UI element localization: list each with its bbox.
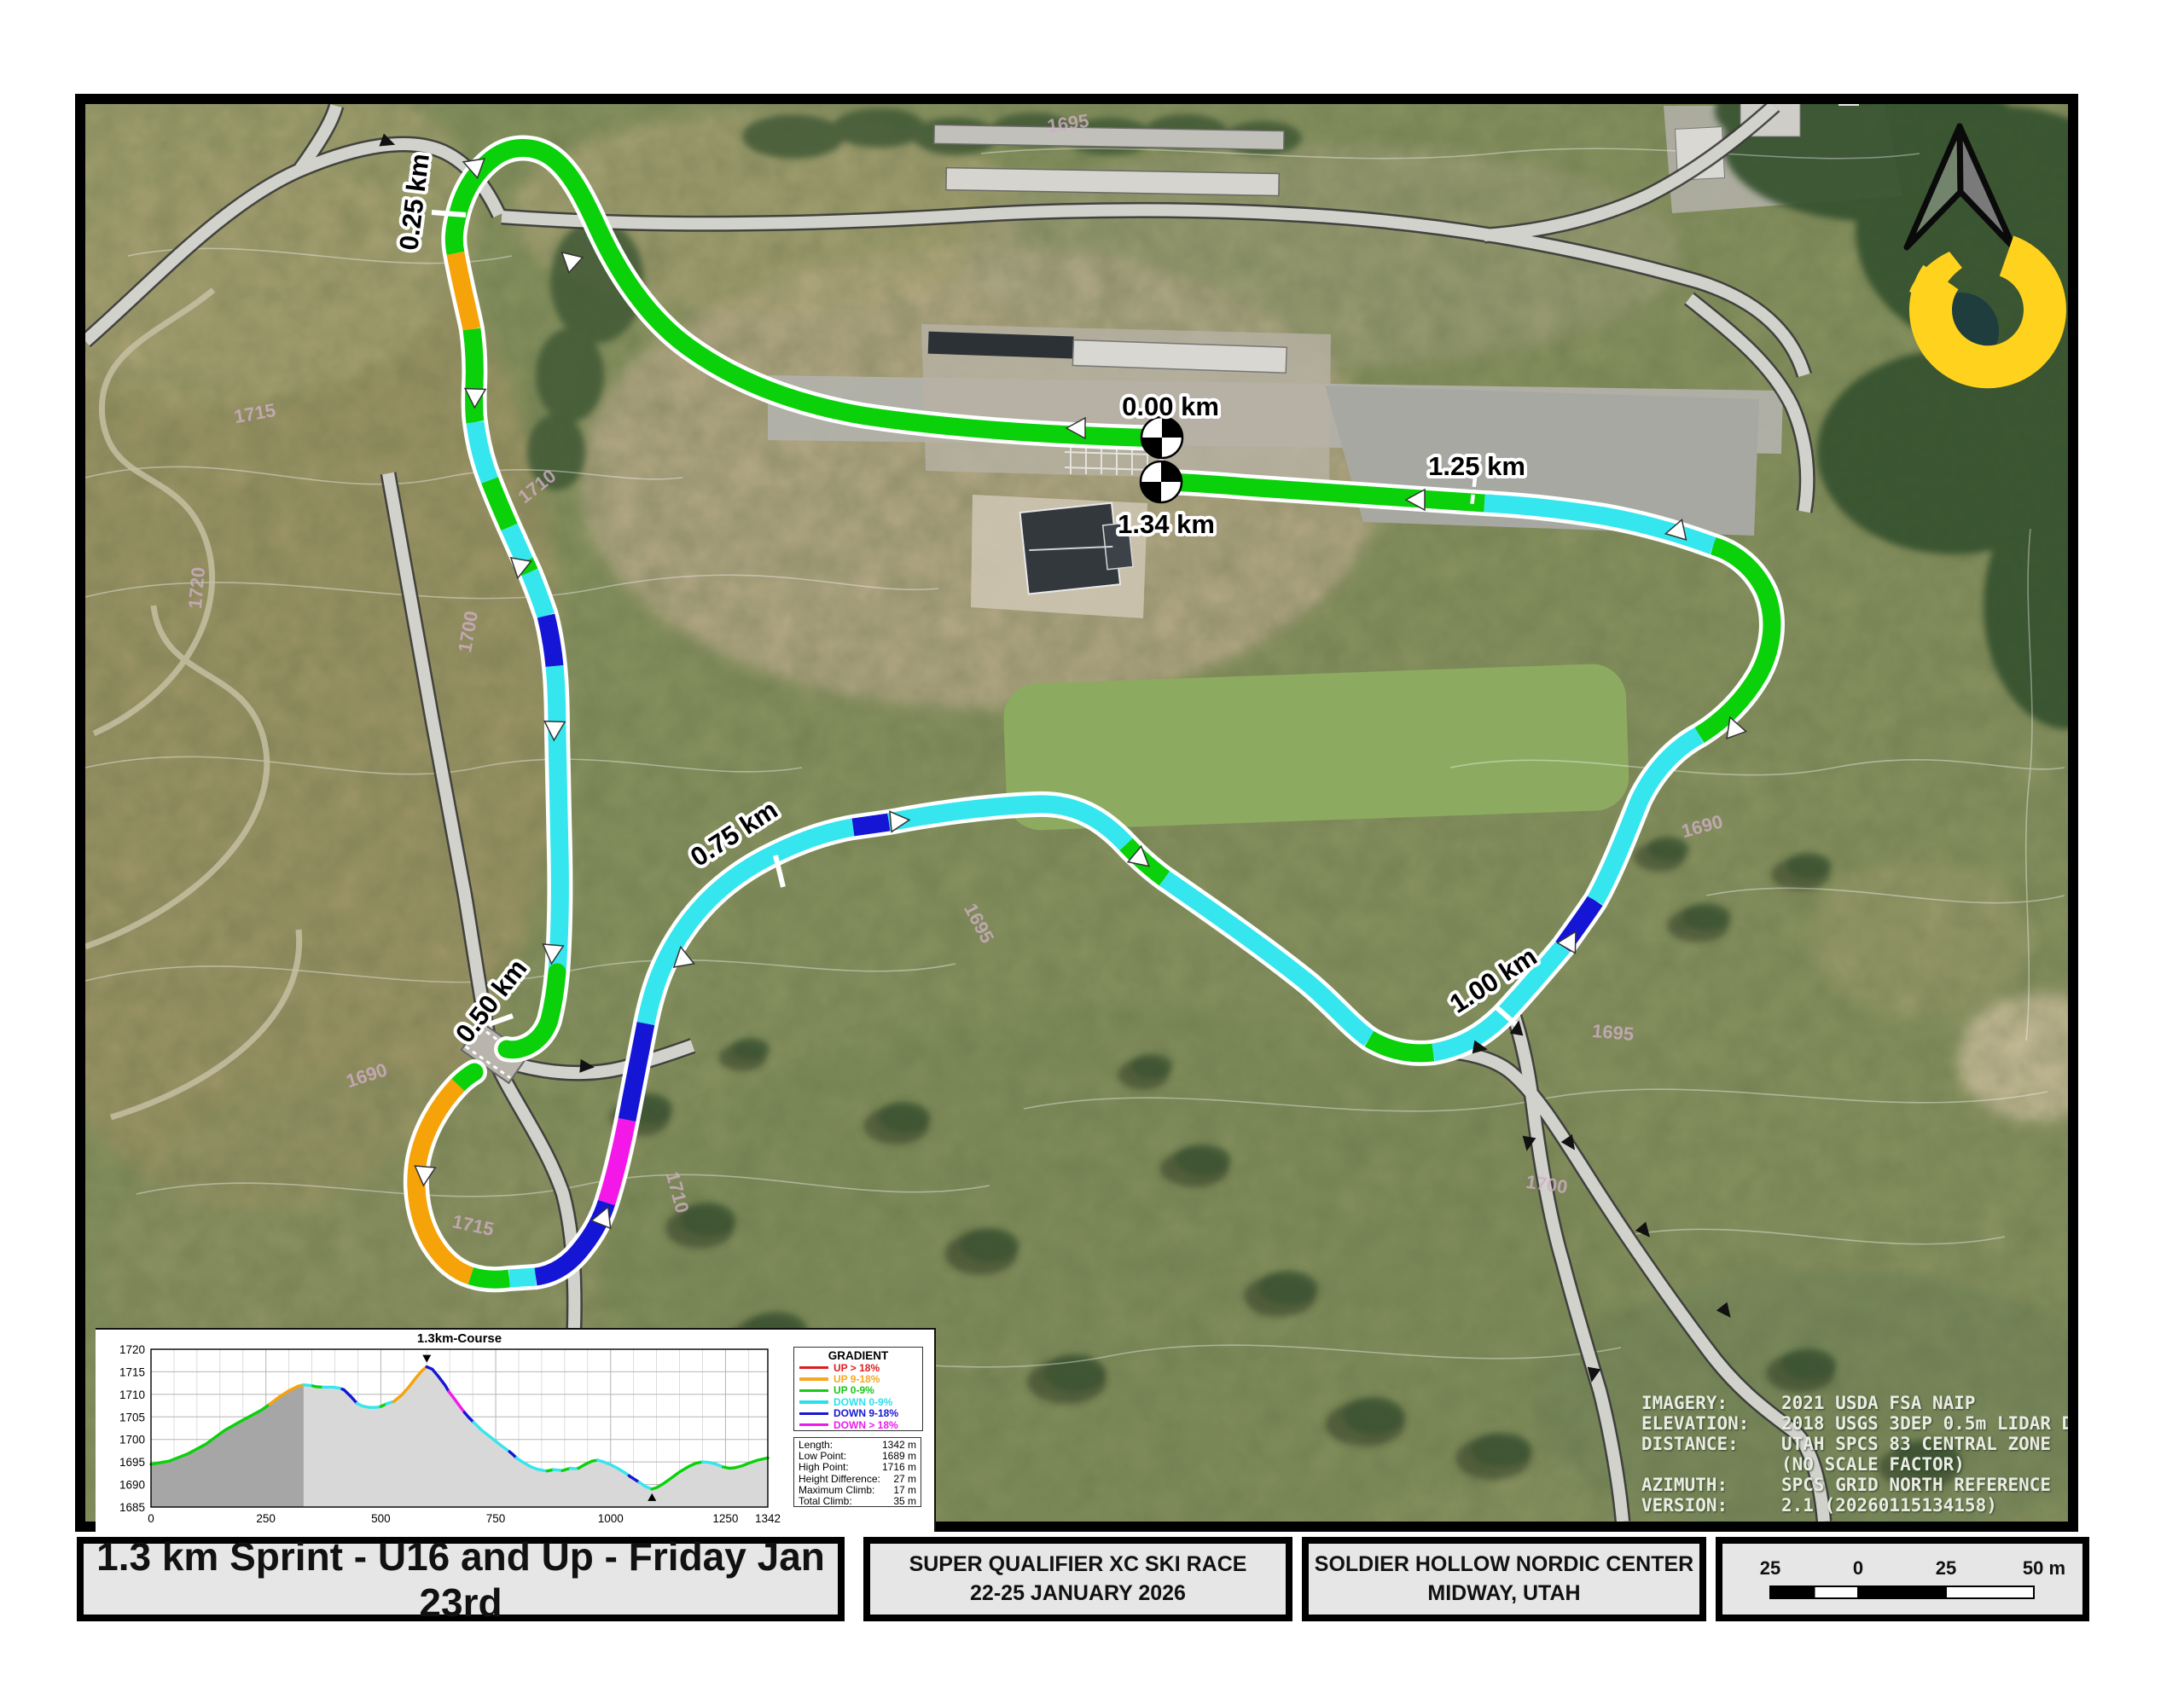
scale-label: 50 m bbox=[2023, 1557, 2065, 1579]
legend-swatch bbox=[799, 1400, 828, 1404]
info-label: DISTANCE: bbox=[1641, 1434, 1739, 1454]
contour-label: 1720 bbox=[184, 566, 209, 610]
svg-text:1705: 1705 bbox=[119, 1411, 145, 1423]
scale-bar-box: 2502550 m bbox=[1716, 1537, 2089, 1621]
svg-text:1342: 1342 bbox=[755, 1512, 781, 1525]
elevation-profile-inset: 1685169016951700170517101715172002505007… bbox=[96, 1328, 936, 1532]
course-title: 1.3 km Sprint - U16 and Up - Friday Jan … bbox=[84, 1533, 838, 1626]
svg-text:1250: 1250 bbox=[712, 1512, 738, 1525]
scale-label: 25 bbox=[1936, 1557, 1956, 1579]
info-value: (NO SCALE FACTOR) bbox=[1781, 1454, 1965, 1475]
legend-entry: DOWN 9-18% bbox=[799, 1408, 917, 1419]
svg-text:250: 250 bbox=[256, 1512, 276, 1525]
start-finish-marker-icon bbox=[1141, 461, 1182, 502]
svg-text:500: 500 bbox=[371, 1512, 391, 1525]
svg-text:1720: 1720 bbox=[119, 1343, 145, 1356]
legend-swatch bbox=[799, 1423, 828, 1427]
info-value: UTAH SPCS 83 CENTRAL ZONE bbox=[1781, 1434, 2051, 1454]
legend-entry: UP > 18% bbox=[799, 1362, 917, 1373]
distance-label: 1.25 km bbox=[1428, 451, 1525, 481]
stat-row: Height Difference:27 m bbox=[799, 1473, 916, 1484]
svg-text:1695: 1695 bbox=[119, 1456, 145, 1469]
svg-text:750: 750 bbox=[486, 1512, 506, 1525]
course-segment-down1 bbox=[509, 1277, 536, 1278]
stat-row: Length:1342 m bbox=[799, 1439, 916, 1450]
svg-text:1710: 1710 bbox=[119, 1388, 145, 1401]
info-label: IMAGERY: bbox=[1641, 1393, 1728, 1413]
distance-label: 1.34 km bbox=[1118, 509, 1215, 539]
scale-bar-graphic: 2502550 m bbox=[1760, 1557, 2065, 1598]
stat-row: Maximum Climb:17 m bbox=[799, 1484, 916, 1495]
svg-text:1690: 1690 bbox=[119, 1479, 145, 1492]
distance-tick bbox=[432, 212, 466, 215]
course-segment-up1 bbox=[458, 1072, 474, 1085]
course-segment-up1 bbox=[471, 1276, 509, 1279]
start-finish-marker-icon bbox=[1141, 417, 1182, 458]
legend-swatch bbox=[799, 1412, 828, 1416]
legend-entry: DOWN 0-9% bbox=[799, 1396, 917, 1407]
distance-label: 0.00 km bbox=[1122, 391, 1219, 421]
contour-label: 1695 bbox=[1591, 1020, 1635, 1045]
high-point-marker bbox=[422, 1355, 431, 1363]
svg-text:1700: 1700 bbox=[119, 1434, 145, 1446]
scale-label: 0 bbox=[1853, 1557, 1863, 1579]
info-value: 2018 USGS 3DEP 0.5m LIDAR DEM bbox=[1781, 1413, 2068, 1434]
gradient-legend: GRADIENT UP > 18%UP 9-18%UP 0-9%DOWN 0-9… bbox=[793, 1347, 923, 1431]
legend-swatch bbox=[799, 1366, 828, 1370]
info-value: SPCS GRID NORTH REFERENCE bbox=[1781, 1475, 2051, 1495]
info-value: 2.1 (20260115134158) bbox=[1781, 1495, 1997, 1516]
legend-entry: DOWN > 18% bbox=[799, 1419, 917, 1430]
legend-entry: UP 0-9% bbox=[799, 1385, 917, 1396]
stat-row: Total Climb:35 m bbox=[799, 1495, 916, 1506]
course-segment-down1 bbox=[555, 666, 560, 972]
venue-box: SOLDIER HOLLOW NORDIC CENTER MIDWAY, UTA… bbox=[1302, 1537, 1706, 1621]
svg-text:1685: 1685 bbox=[119, 1501, 145, 1514]
course-stats-box: Length:1342 mLow Point:1689 mHigh Point:… bbox=[793, 1437, 921, 1507]
event-title-box: SUPER QUALIFIER XC SKI RACE 22-25 JANUAR… bbox=[863, 1537, 1292, 1621]
chart-title: 1.3km-Course bbox=[417, 1331, 502, 1346]
course-segment-down2 bbox=[853, 822, 889, 827]
legend-swatch bbox=[799, 1377, 828, 1381]
venue-location: MIDWAY, UTAH bbox=[1427, 1580, 1580, 1609]
svg-text:1715: 1715 bbox=[119, 1365, 145, 1378]
course-title-box: 1.3 km Sprint - U16 and Up - Friday Jan … bbox=[77, 1537, 845, 1621]
info-label: AZIMUTH: bbox=[1641, 1475, 1728, 1495]
info-label: ELEVATION: bbox=[1641, 1413, 1749, 1434]
stat-row: High Point:1716 m bbox=[799, 1461, 916, 1472]
stat-row: Low Point:1689 m bbox=[799, 1450, 916, 1461]
scale-bar: 2502550 m bbox=[1723, 1545, 2082, 1614]
info-value: 2021 USDA FSA NAIP bbox=[1781, 1393, 1976, 1413]
venue-name: SOLDIER HOLLOW NORDIC CENTER bbox=[1315, 1551, 1693, 1580]
event-dates: 22-25 JANUARY 2026 bbox=[970, 1580, 1186, 1609]
map-frame: 1695169516901695170017101700171517101720… bbox=[75, 94, 2078, 1532]
scale-label: 25 bbox=[1760, 1557, 1780, 1579]
legend-swatch bbox=[799, 1389, 828, 1393]
svg-text:1000: 1000 bbox=[598, 1512, 624, 1525]
svg-text:0: 0 bbox=[148, 1512, 154, 1525]
course-map: 1695169516901695170017101700171517101720… bbox=[85, 104, 2068, 1522]
legend-entry: UP 9-18% bbox=[799, 1373, 917, 1384]
course-segment-down2 bbox=[546, 616, 555, 666]
legend-title: GRADIENT bbox=[799, 1349, 917, 1362]
info-label: VERSION: bbox=[1641, 1495, 1728, 1516]
event-name: SUPER QUALIFIER XC SKI RACE bbox=[909, 1551, 1247, 1580]
